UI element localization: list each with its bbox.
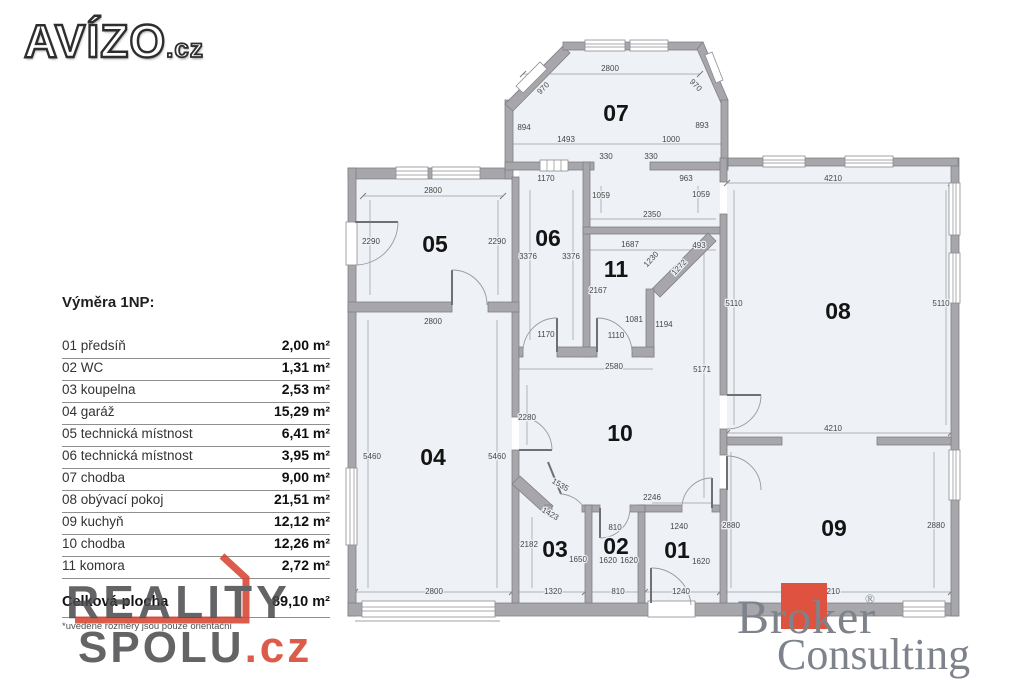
- room-area-value: 15,29 m²: [274, 403, 330, 419]
- dimension-label: 2880: [927, 521, 945, 530]
- dimension-label: 1240: [670, 522, 688, 531]
- dimension-label: 5460: [488, 452, 506, 461]
- dimension-label: 3376: [519, 252, 537, 261]
- avizo-logo-text: AVÍZO: [24, 15, 166, 67]
- dimension-label: 1194: [655, 320, 673, 329]
- consulting-text: Consulting: [777, 630, 970, 679]
- area-table-row: 03 koupelna2,53 m²: [62, 381, 330, 403]
- room-area-value: 9,00 m²: [282, 469, 330, 485]
- dimension-label: 1000: [662, 135, 680, 144]
- dimension-label: 2800: [601, 64, 619, 73]
- area-table-row: 06 technická místnost3,95 m²: [62, 447, 330, 469]
- room-name: 07 chodba: [62, 470, 125, 485]
- dimension-label: 1687: [621, 240, 639, 249]
- dimension-label: 330: [644, 152, 658, 161]
- room-name: 04 garáž: [62, 404, 115, 419]
- room-number-label: 04: [420, 444, 446, 470]
- spolu-text: SPOLU.cz: [78, 623, 312, 672]
- dimension-label: 1110: [608, 331, 625, 340]
- dimension-label: 2580: [605, 362, 623, 371]
- dimension-label: 4210: [824, 424, 842, 433]
- room-area-value: 12,26 m²: [274, 535, 330, 551]
- room-area-value: 2,00 m²: [282, 337, 330, 353]
- dimension-label: 2182: [520, 540, 538, 549]
- room-area-value: 6,41 m²: [282, 425, 330, 441]
- broker-reg-mark: ®: [865, 591, 875, 606]
- dimension-label: 1620: [692, 557, 710, 566]
- area-table-title: Výměra 1NP:: [62, 294, 330, 311]
- dimension-label: 893: [695, 121, 709, 130]
- room-number-label: 09: [821, 515, 847, 541]
- room-name: 03 koupelna: [62, 382, 136, 397]
- dimension-label: 810: [608, 523, 622, 532]
- floorplan-page: AVÍZO.cz Výměra 1NP: 01 předsíň2,00 m²02…: [0, 0, 1024, 683]
- room-area-value: 21,51 m²: [274, 491, 330, 507]
- room-name: 10 chodba: [62, 536, 125, 551]
- room-area-value: 1,31 m²: [282, 359, 330, 375]
- room-number-label: 03: [542, 536, 568, 562]
- area-table-row: 04 garáž15,29 m²: [62, 403, 330, 425]
- dimension-label: 963: [679, 174, 693, 183]
- dimension-label: 2280: [518, 413, 536, 422]
- dimension-label: 1240: [672, 587, 690, 596]
- dimension-label: 1081: [625, 315, 643, 324]
- dimension-label: 1059: [592, 191, 610, 200]
- dimension-label: 2246: [643, 493, 661, 502]
- dimension-label: 810: [611, 587, 625, 596]
- room-number-label: 11: [604, 256, 629, 282]
- room-number-label: 01: [664, 537, 690, 563]
- dimension-label: 894: [517, 123, 531, 132]
- avizo-logo-suffix: .cz: [166, 33, 204, 63]
- area-table-row: 08 obývací pokoj21,51 m²: [62, 491, 330, 513]
- area-table-row: 05 technická místnost6,41 m²: [62, 425, 330, 447]
- dimension-label: 493: [692, 241, 706, 250]
- room-number-label: 08: [825, 298, 851, 324]
- dimension-label: 3376: [562, 252, 580, 261]
- room-name: 09 kuchyň: [62, 514, 124, 529]
- room-number-label: 06: [535, 225, 561, 251]
- dimension-label: 2350: [643, 210, 661, 219]
- reality-spolu-logo: REALITY SPOLU.cz: [58, 550, 338, 683]
- reality-spolu-logo-graphic: REALITY SPOLU.cz: [58, 550, 338, 680]
- room-area-value: 2,53 m²: [282, 381, 330, 397]
- room-name: 02 WC: [62, 360, 103, 375]
- dimension-label: 1170: [537, 330, 555, 339]
- dimension-label: 1320: [544, 587, 562, 596]
- avizo-logo: AVÍZO.cz: [24, 14, 204, 68]
- dimension-label: 1493: [557, 135, 575, 144]
- dimension-label: 5460: [363, 452, 381, 461]
- dimension-label: 1059: [692, 190, 710, 199]
- room-number-label: 07: [603, 100, 629, 126]
- room-name: 06 technická místnost: [62, 448, 193, 463]
- area-table-rows: 01 předsíň2,00 m²02 WC1,31 m²03 koupelna…: [62, 337, 330, 579]
- reality-text: REALITY: [66, 576, 291, 628]
- area-table-row: 01 předsíň2,00 m²: [62, 337, 330, 359]
- room-area-value: 12,12 m²: [274, 513, 330, 529]
- room-number-label: 02: [603, 533, 629, 559]
- dimension-label: 2800: [425, 587, 443, 596]
- dimension-label: 5171: [693, 365, 711, 374]
- dimension-label: 2167: [589, 286, 607, 295]
- area-table-row: 07 chodba9,00 m²: [62, 469, 330, 491]
- dimension-label: 1650: [569, 555, 587, 564]
- area-table-row: 09 kuchyň12,12 m²: [62, 513, 330, 535]
- floorplan-drawing: 2800970970894893149310003303301170963105…: [340, 30, 964, 630]
- room-name: 08 obývací pokoj: [62, 492, 163, 507]
- room-number-label: 05: [422, 231, 448, 257]
- dimension-label: 2880: [722, 521, 740, 530]
- room-number-label: 10: [607, 420, 633, 446]
- room-area-value: 3,95 m²: [282, 447, 330, 463]
- dimension-label: 4210: [824, 174, 842, 183]
- dimension-label: 2290: [488, 237, 506, 246]
- dimension-label: 5110: [932, 299, 950, 308]
- room-name: 01 předsíň: [62, 338, 126, 353]
- dimension-label: 2800: [424, 317, 442, 326]
- area-table-row: 02 WC1,31 m²: [62, 359, 330, 381]
- dimension-label: 5110: [725, 299, 743, 308]
- dimension-label: 330: [599, 152, 613, 161]
- broker-consulting-logo: Broker ® Consulting: [731, 576, 981, 683]
- dimension-label: 2800: [424, 186, 442, 195]
- room-name: 05 technická místnost: [62, 426, 193, 441]
- dimension-label: 1170: [537, 174, 555, 183]
- broker-consulting-logo-graphic: Broker ® Consulting: [731, 576, 981, 682]
- dimension-label: 2290: [362, 237, 380, 246]
